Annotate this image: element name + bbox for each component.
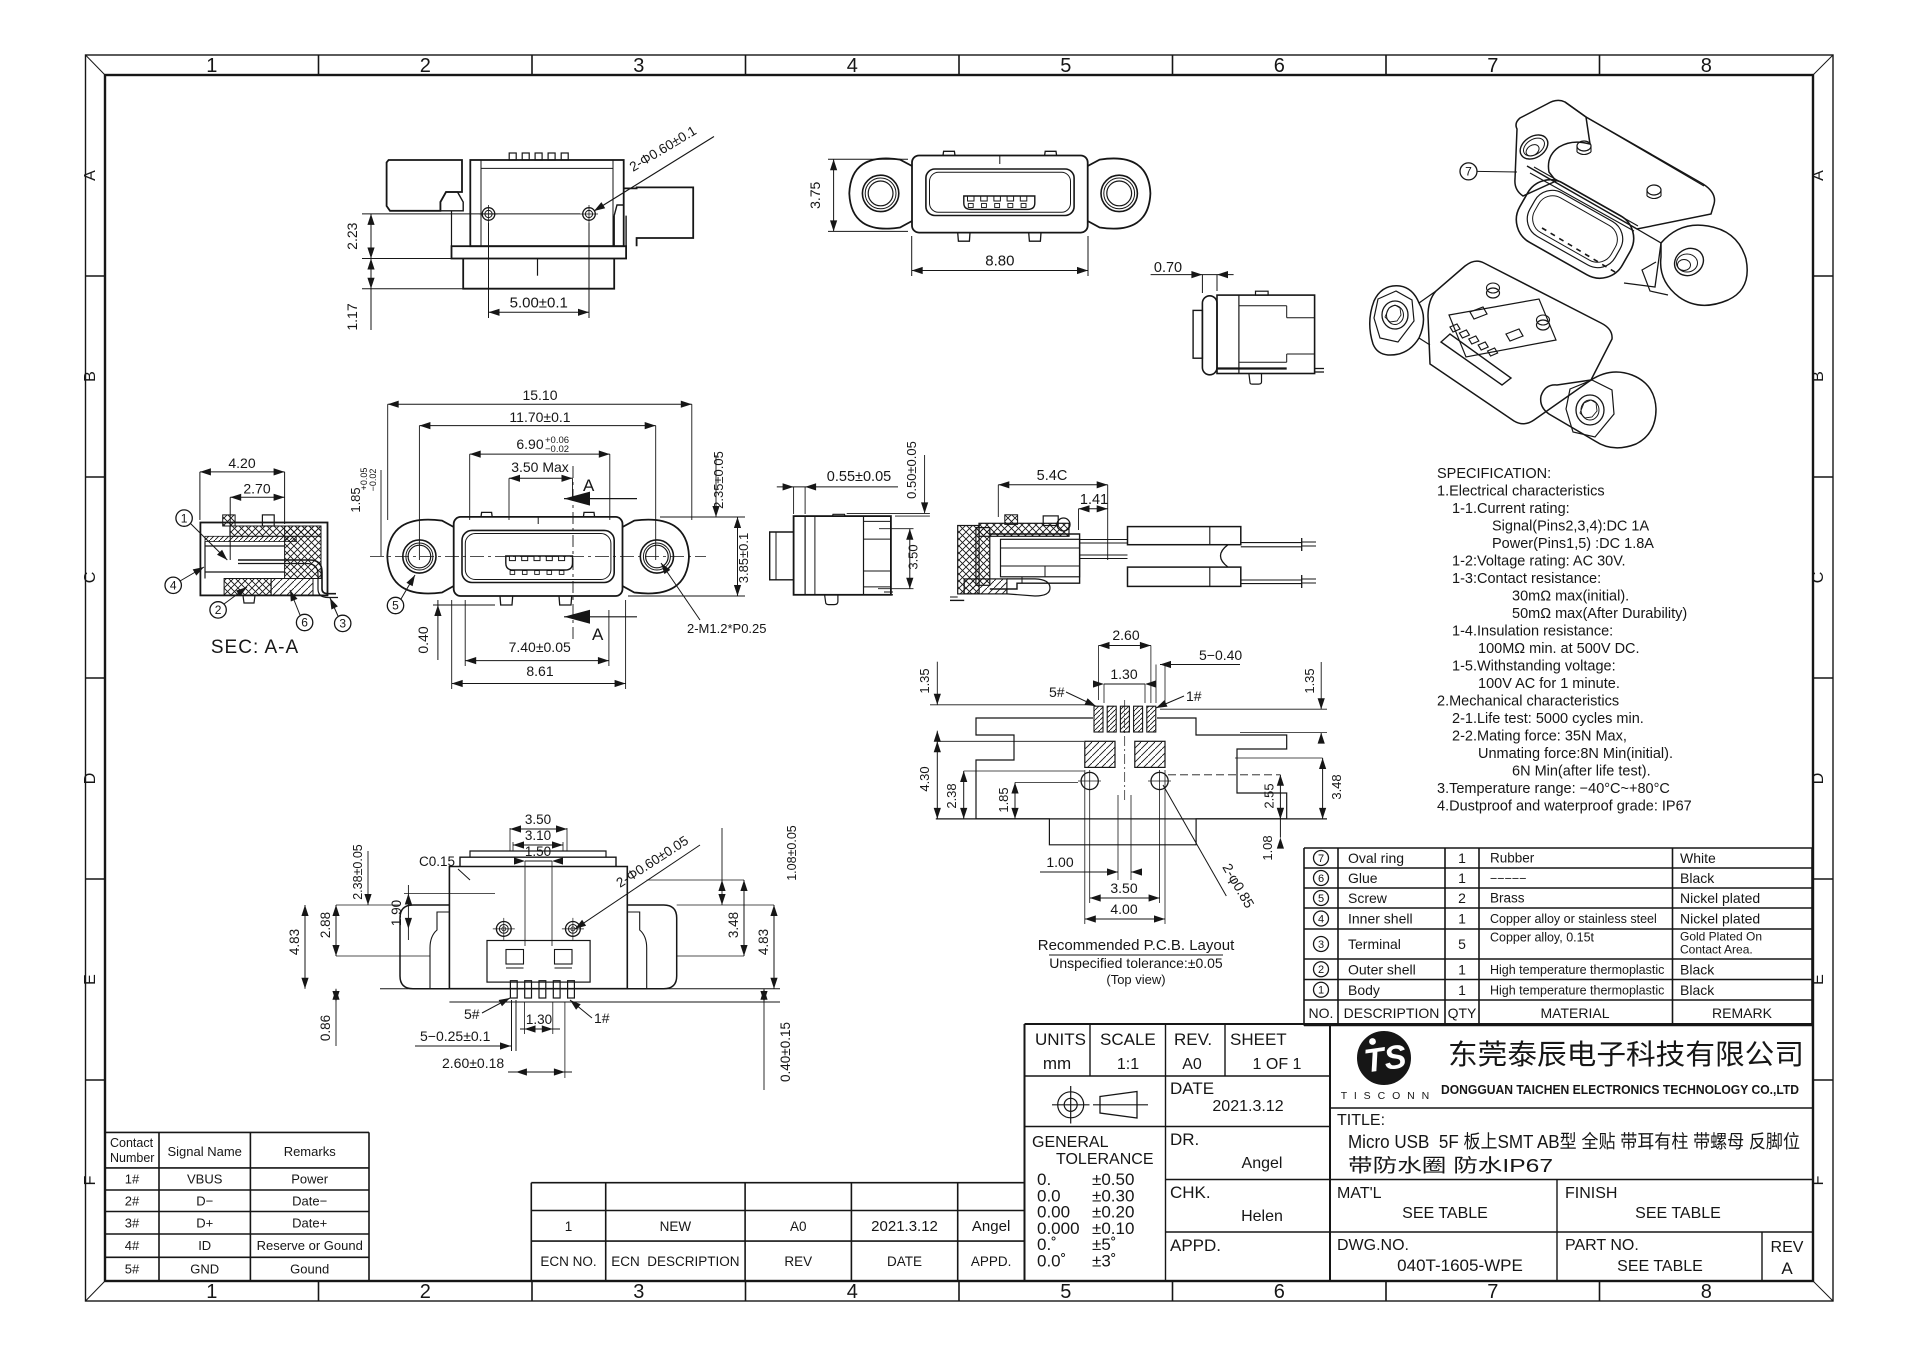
svg-text:1.Electrical characteristics: 1.Electrical characteristics: [1437, 484, 1605, 500]
svg-text:1: 1: [1318, 985, 1324, 997]
svg-text:5.00±0.1: 5.00±0.1: [510, 294, 568, 311]
svg-text:A: A: [583, 476, 595, 495]
svg-text:Terminal: Terminal: [1348, 936, 1401, 952]
svg-text:F: F: [1810, 1175, 1827, 1185]
svg-text:2: 2: [420, 1281, 431, 1303]
svg-text:UNITS: UNITS: [1035, 1030, 1086, 1049]
svg-text:1-4.Insulation resistance:: 1-4.Insulation resistance:: [1452, 624, 1613, 640]
svg-text:B: B: [82, 371, 99, 382]
svg-text:4.30: 4.30: [917, 766, 932, 791]
svg-text:5: 5: [392, 599, 399, 613]
svg-text:D: D: [82, 773, 99, 785]
svg-text:ECN DESCRIPTION: ECN DESCRIPTION: [611, 1254, 739, 1269]
svg-text:Black: Black: [1680, 961, 1715, 977]
svg-text:C0.15: C0.15: [419, 854, 455, 869]
svg-text:1.30: 1.30: [526, 1012, 552, 1027]
svg-text:0.55±0.05: 0.55±0.05: [827, 469, 891, 485]
svg-text:6.90: 6.90: [516, 436, 543, 452]
svg-text:2.55: 2.55: [1262, 783, 1277, 808]
svg-text:SHEET: SHEET: [1230, 1030, 1287, 1049]
svg-text:Number: Number: [110, 1151, 154, 1165]
svg-text:Contact: Contact: [110, 1136, 154, 1150]
svg-text:TOLERANCE: TOLERANCE: [1056, 1151, 1154, 1168]
svg-text:DR.: DR.: [1170, 1130, 1199, 1149]
svg-text:TITLE:: TITLE:: [1337, 1112, 1385, 1129]
svg-text:REV: REV: [784, 1254, 812, 1269]
svg-text:8.80: 8.80: [985, 253, 1014, 270]
svg-text:−0.02: −0.02: [368, 469, 378, 492]
svg-text:0.0˚: 0.0˚: [1037, 1252, 1066, 1271]
svg-text:White: White: [1680, 850, 1716, 866]
svg-text:2: 2: [1458, 890, 1466, 906]
svg-text:4.83: 4.83: [756, 929, 771, 955]
svg-text:High temperature thermoplastic: High temperature thermoplastic: [1490, 963, 1664, 977]
svg-text:2.88: 2.88: [318, 912, 333, 938]
svg-text:1#: 1#: [594, 1010, 610, 1026]
svg-text:4: 4: [170, 579, 177, 593]
svg-text:7: 7: [1465, 165, 1472, 179]
svg-text:Contact Area.: Contact Area.: [1680, 943, 1753, 957]
svg-text:2: 2: [1318, 964, 1324, 976]
svg-text:Remarks: Remarks: [284, 1144, 337, 1159]
svg-text:SEC: A-A: SEC: A-A: [211, 637, 299, 658]
svg-text:±3˚: ±3˚: [1092, 1252, 1116, 1271]
svg-text:4.Dustproof and waterproof gra: 4.Dustproof and waterproof grade: IP67: [1437, 799, 1692, 815]
svg-text:3.50 Max: 3.50 Max: [511, 459, 569, 475]
svg-text:0.86: 0.86: [318, 1015, 333, 1041]
svg-text:Power: Power: [291, 1171, 329, 1186]
svg-text:APPD.: APPD.: [1170, 1236, 1221, 1255]
svg-text:0.40: 0.40: [415, 626, 431, 653]
svg-text:1: 1: [1458, 961, 1466, 977]
svg-text:Nickel plated: Nickel plated: [1680, 890, 1760, 906]
svg-text:E: E: [82, 974, 99, 985]
svg-text:5#: 5#: [1049, 684, 1065, 700]
svg-text:DONGGUAN TAICHEN ELECTRONICS T: DONGGUAN TAICHEN ELECTRONICS TECHNOLOGY …: [1441, 1083, 1799, 1097]
svg-text:GENERAL: GENERAL: [1032, 1134, 1109, 1151]
svg-text:Date−: Date−: [292, 1193, 327, 1208]
svg-text:1.50: 1.50: [525, 844, 551, 859]
svg-text:SCALE: SCALE: [1100, 1030, 1156, 1049]
svg-text:Unspecified tolerance:±0.05: Unspecified tolerance:±0.05: [1049, 955, 1223, 971]
svg-text:4.00: 4.00: [1110, 901, 1137, 917]
svg-text:Copper alloy or stainless stee: Copper alloy or stainless steel: [1490, 912, 1657, 926]
svg-text:1.85: 1.85: [996, 787, 1011, 812]
svg-text:Power(Pins1,5) :DC 1.8A: Power(Pins1,5) :DC 1.8A: [1492, 536, 1654, 552]
svg-text:A: A: [592, 625, 604, 644]
svg-text:4.83: 4.83: [287, 929, 302, 955]
svg-text:1.08: 1.08: [1260, 835, 1275, 860]
svg-text:2.23: 2.23: [344, 222, 360, 249]
svg-text:VBUS: VBUS: [187, 1171, 223, 1186]
svg-text:NEW: NEW: [660, 1219, 692, 1234]
svg-text:2-M1.2*P0.25: 2-M1.2*P0.25: [687, 621, 767, 636]
svg-text:1-2:Voltage rating: AC 30V.: 1-2:Voltage rating: AC 30V.: [1452, 554, 1626, 570]
svg-text:2.35±0.05: 2.35±0.05: [711, 451, 726, 509]
svg-text:DATE: DATE: [887, 1254, 922, 1269]
svg-text:5−0.25±0.1: 5−0.25±0.1: [420, 1028, 491, 1044]
svg-text:8: 8: [1701, 55, 1712, 77]
svg-text:1: 1: [206, 55, 217, 77]
svg-text:REV: REV: [1771, 1239, 1804, 1256]
svg-text:5: 5: [1060, 55, 1071, 77]
svg-text:A: A: [1810, 170, 1827, 181]
svg-text:5#: 5#: [125, 1262, 140, 1277]
svg-text:Rubber: Rubber: [1490, 851, 1535, 866]
svg-text:D−: D−: [196, 1193, 213, 1208]
svg-text:4: 4: [1318, 913, 1324, 925]
svg-text:4: 4: [847, 1281, 858, 1303]
svg-text:50mΩ max(After Durability): 50mΩ max(After Durability): [1512, 606, 1687, 622]
svg-text:5#: 5#: [464, 1006, 480, 1022]
svg-text:1-5.Withstanding voltage:: 1-5.Withstanding voltage:: [1452, 659, 1616, 675]
svg-text:TS: TS: [1362, 1037, 1409, 1080]
svg-text:7: 7: [1487, 55, 1498, 77]
svg-text:2.60: 2.60: [1112, 627, 1139, 643]
svg-text:5: 5: [1318, 893, 1324, 905]
svg-text:1#: 1#: [125, 1171, 140, 1186]
svg-text:2-1.Life test: 5000 cycles min: 2-1.Life test: 5000 cycles min.: [1452, 711, 1644, 727]
svg-text:3.Temperature range: −40°C~+80: 3.Temperature range: −40°C~+80°C: [1437, 781, 1670, 797]
svg-text:Angel: Angel: [972, 1218, 1010, 1235]
svg-text:5.4C: 5.4C: [1037, 468, 1068, 484]
svg-text:0.70: 0.70: [1154, 260, 1182, 276]
svg-text:3.10: 3.10: [525, 828, 551, 843]
svg-text:3.48: 3.48: [726, 912, 741, 938]
svg-text:4.20: 4.20: [228, 455, 255, 471]
svg-text:A0: A0: [790, 1219, 807, 1234]
svg-text:东莞泰辰电子科技有限公司: 东莞泰辰电子科技有限公司: [1448, 1039, 1804, 1070]
svg-text:3.75: 3.75: [807, 181, 823, 208]
svg-text:1.41: 1.41: [1080, 492, 1108, 508]
svg-text:Nickel plated: Nickel plated: [1680, 911, 1760, 927]
svg-text:1: 1: [1458, 911, 1466, 927]
svg-text:1 OF 1: 1 OF 1: [1253, 1056, 1302, 1073]
svg-text:7: 7: [1487, 1281, 1498, 1303]
svg-text:3.50: 3.50: [1110, 880, 1137, 896]
svg-text:Angel: Angel: [1242, 1155, 1283, 1172]
svg-text:1-3:Contact resistance:: 1-3:Contact resistance:: [1452, 571, 1601, 587]
svg-text:Reserve or Gound: Reserve or Gound: [257, 1238, 363, 1253]
svg-text:A: A: [1781, 1259, 1793, 1278]
svg-text:QTY: QTY: [1448, 1005, 1477, 1021]
svg-text:1#: 1#: [1186, 688, 1202, 704]
svg-text:Micro USB 5F 板上SMT AB型 全贴 带耳有: Micro USB 5F 板上SMT AB型 全贴 带耳有柱 带螺母 反脚位: [1348, 1131, 1800, 1152]
svg-text:2#: 2#: [125, 1193, 140, 1208]
svg-text:6: 6: [1274, 55, 1285, 77]
svg-text:DATE: DATE: [1170, 1079, 1214, 1098]
svg-text:4#: 4#: [125, 1238, 140, 1253]
svg-text:mm: mm: [1043, 1054, 1071, 1073]
svg-text:Signal(Pins2,3,4):DC 1A: Signal(Pins2,3,4):DC 1A: [1492, 519, 1649, 535]
svg-text:1.35: 1.35: [917, 668, 932, 693]
svg-text:1: 1: [1458, 850, 1466, 866]
svg-text:5: 5: [1458, 936, 1466, 952]
svg-text:SPECIFICATION:: SPECIFICATION:: [1437, 466, 1551, 482]
svg-text:Date+: Date+: [292, 1215, 327, 1230]
svg-text:A: A: [82, 170, 99, 181]
svg-text:2.60±0.18: 2.60±0.18: [442, 1055, 504, 1071]
svg-text:Gold Plated On: Gold Plated On: [1680, 930, 1762, 944]
svg-text:2.70: 2.70: [243, 481, 270, 497]
svg-text:1: 1: [206, 1281, 217, 1303]
svg-text:1: 1: [181, 511, 188, 525]
svg-text:040T-1605-WPE: 040T-1605-WPE: [1397, 1256, 1523, 1275]
svg-text:D+: D+: [196, 1215, 213, 1230]
svg-text:2: 2: [215, 603, 222, 617]
svg-text:Helen: Helen: [1241, 1208, 1283, 1225]
svg-text:1.30: 1.30: [1110, 666, 1137, 682]
svg-text:Brass: Brass: [1490, 891, 1525, 906]
svg-text:C: C: [82, 572, 99, 584]
svg-text:4: 4: [847, 55, 858, 77]
svg-text:SEE TABLE: SEE TABLE: [1617, 1258, 1703, 1275]
svg-text:NO.: NO.: [1309, 1005, 1334, 1021]
svg-text:30mΩ max(initial).: 30mΩ max(initial).: [1512, 589, 1629, 605]
svg-text:2.38: 2.38: [944, 783, 959, 808]
svg-text:Glue: Glue: [1348, 870, 1378, 886]
svg-text:D: D: [1810, 773, 1827, 785]
svg-text:Body: Body: [1348, 982, 1380, 998]
svg-text:APPD.: APPD.: [971, 1254, 1012, 1269]
svg-text:Outer shell: Outer shell: [1348, 961, 1416, 977]
svg-text:带防水圈 防水IP67: 带防水圈 防水IP67: [1348, 1155, 1553, 1176]
svg-text:1-1.Current rating:: 1-1.Current rating:: [1452, 501, 1570, 517]
svg-text:Black: Black: [1680, 870, 1715, 886]
svg-text:15.10: 15.10: [522, 387, 557, 403]
svg-text:FINISH: FINISH: [1565, 1185, 1617, 1202]
svg-text:3: 3: [633, 1281, 644, 1303]
svg-text:7.40±0.05: 7.40±0.05: [509, 639, 571, 655]
svg-text:3.50: 3.50: [525, 812, 551, 827]
svg-text:100V AC for 1 minute.: 100V AC for 1 minute.: [1478, 676, 1620, 692]
svg-text:3.48: 3.48: [1329, 774, 1344, 799]
svg-text:0.50±0.05: 0.50±0.05: [904, 441, 919, 499]
svg-text:7: 7: [1318, 853, 1324, 865]
svg-text:2-2.Mating force: 35N Max,: 2-2.Mating force: 35N Max,: [1452, 729, 1627, 745]
svg-text:GND: GND: [190, 1262, 219, 1277]
svg-text:B: B: [1810, 371, 1827, 382]
svg-text:(Top view): (Top view): [1106, 972, 1165, 987]
svg-text:2: 2: [420, 55, 431, 77]
svg-text:MATERIAL: MATERIAL: [1541, 1005, 1610, 1021]
svg-text:−−−−−: −−−−−: [1490, 872, 1527, 886]
svg-text:A0: A0: [1182, 1056, 1202, 1073]
svg-text:1.35: 1.35: [1302, 668, 1317, 693]
svg-text:1:1: 1:1: [1117, 1056, 1139, 1073]
svg-text:100MΩ min. at 500V DC.: 100MΩ min. at 500V DC.: [1478, 641, 1640, 657]
svg-text:−0.02: −0.02: [545, 444, 569, 455]
svg-text:1.17: 1.17: [344, 303, 360, 330]
svg-text:Oval ring: Oval ring: [1348, 850, 1404, 866]
svg-text:High temperature thermoplastic: High temperature thermoplastic: [1490, 983, 1664, 997]
svg-text:1.90: 1.90: [389, 900, 404, 926]
svg-text:1: 1: [1458, 982, 1466, 998]
svg-text:SEE TABLE: SEE TABLE: [1635, 1205, 1721, 1222]
svg-text:Recommended P.C.B. Layout: Recommended P.C.B. Layout: [1038, 937, 1235, 954]
svg-text:8.61: 8.61: [526, 663, 553, 679]
svg-text:PART NO.: PART NO.: [1565, 1237, 1639, 1254]
svg-text:DWG.NO.: DWG.NO.: [1337, 1237, 1409, 1254]
svg-text:6N Min(after life test).: 6N Min(after life test).: [1512, 764, 1651, 780]
svg-text:1.00: 1.00: [1046, 854, 1073, 870]
svg-text:Black: Black: [1680, 982, 1715, 998]
svg-text:0.40±0.15: 0.40±0.15: [778, 1022, 793, 1082]
svg-text:ID: ID: [198, 1238, 211, 1253]
svg-text:SEE TABLE: SEE TABLE: [1402, 1205, 1488, 1222]
svg-text:Signal Name: Signal Name: [167, 1144, 241, 1159]
svg-text:6: 6: [301, 616, 308, 630]
svg-text:3: 3: [1318, 939, 1324, 951]
svg-text:3.50: 3.50: [906, 544, 921, 569]
svg-text:T I S C O N N: T I S C O N N: [1341, 1090, 1432, 1102]
svg-text:6: 6: [1274, 1281, 1285, 1303]
svg-text:F: F: [82, 1175, 99, 1185]
svg-text:Screw: Screw: [1348, 890, 1388, 906]
svg-text:5−0.40: 5−0.40: [1199, 647, 1242, 663]
svg-text:2.38±0.05: 2.38±0.05: [351, 844, 365, 900]
svg-text:1.08±0.05: 1.08±0.05: [785, 825, 799, 881]
svg-text:ECN NO.: ECN NO.: [540, 1254, 596, 1269]
svg-text:DESCRIPTION: DESCRIPTION: [1344, 1005, 1440, 1021]
svg-text:11.70±0.1: 11.70±0.1: [509, 409, 570, 425]
svg-text:3: 3: [633, 55, 644, 77]
svg-text:1: 1: [1458, 870, 1466, 886]
svg-text:Unmating force:8N Min(initial): Unmating force:8N Min(initial).: [1478, 746, 1673, 762]
svg-text:5: 5: [1060, 1281, 1071, 1303]
svg-text:8: 8: [1701, 1281, 1712, 1303]
svg-text:Copper alloy, 0.15t: Copper alloy, 0.15t: [1490, 931, 1595, 945]
svg-text:2021.3.12: 2021.3.12: [871, 1218, 938, 1235]
svg-text:C: C: [1810, 572, 1827, 584]
svg-text:2021.3.12: 2021.3.12: [1212, 1098, 1283, 1115]
svg-text:3#: 3#: [125, 1215, 140, 1230]
svg-text:CHK.: CHK.: [1170, 1183, 1211, 1202]
svg-text:MAT'L: MAT'L: [1337, 1185, 1382, 1202]
svg-text:6: 6: [1318, 873, 1324, 885]
svg-text:REV.: REV.: [1174, 1030, 1212, 1049]
svg-text:3.85±0.1: 3.85±0.1: [736, 533, 751, 584]
svg-text:1: 1: [565, 1219, 573, 1234]
svg-text:REMARK: REMARK: [1712, 1005, 1773, 1021]
svg-text:Gound: Gound: [290, 1262, 329, 1277]
svg-text:2.Mechanical characteristics: 2.Mechanical characteristics: [1437, 694, 1619, 710]
svg-text:3: 3: [339, 617, 346, 631]
svg-text:Inner shell: Inner shell: [1348, 911, 1413, 927]
